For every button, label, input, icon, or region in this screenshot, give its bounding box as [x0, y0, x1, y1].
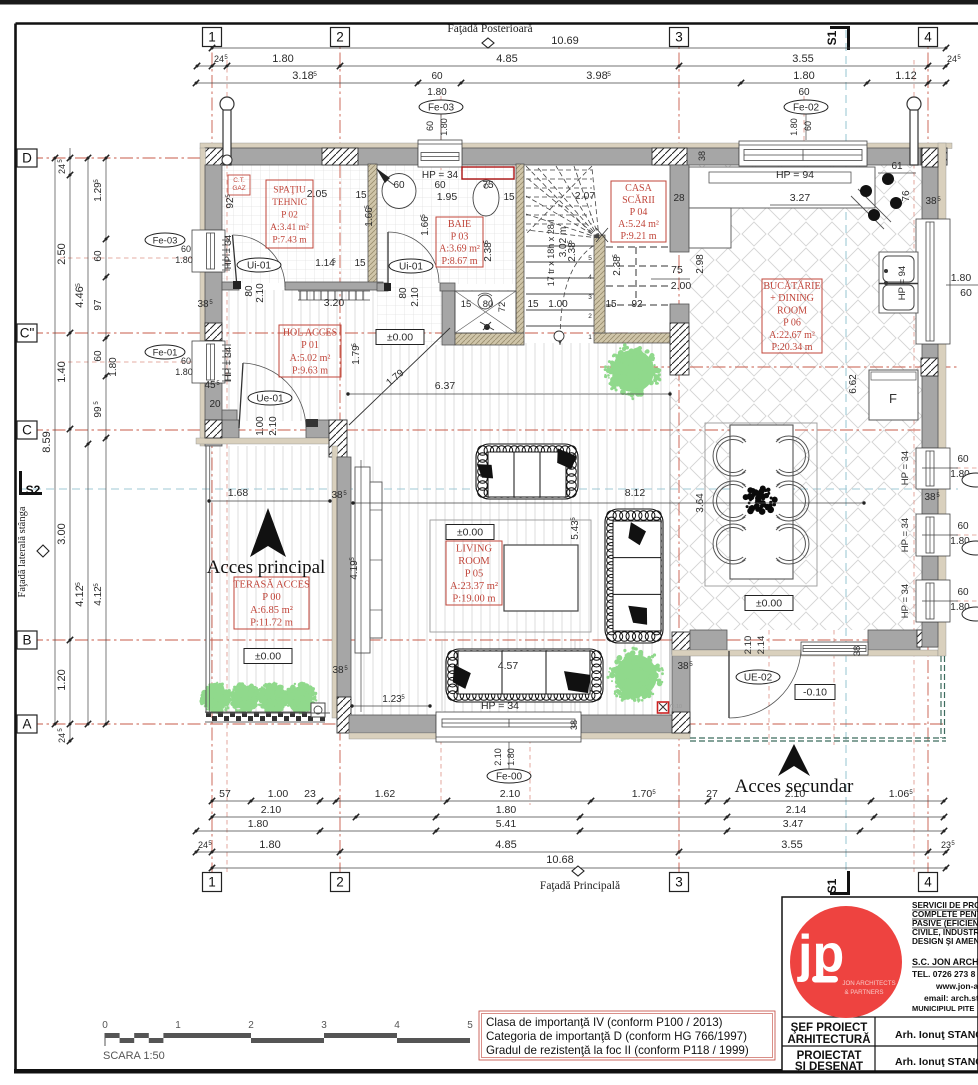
svg-text:4.12: 4.12 — [74, 585, 86, 606]
svg-text:38: 38 — [197, 299, 209, 310]
svg-text:A: A — [22, 717, 31, 732]
svg-text:2.00: 2.00 — [671, 280, 692, 292]
svg-text:C": C" — [20, 326, 35, 341]
svg-text:2.98: 2.98 — [695, 254, 706, 274]
svg-text:4: 4 — [588, 274, 592, 281]
svg-text:CIVILE, INDUSTRI: CIVILE, INDUSTRI — [912, 928, 978, 937]
svg-text:60: 60 — [434, 180, 446, 191]
svg-text:2.10: 2.10 — [410, 287, 421, 307]
svg-text:±0.00: ±0.00 — [457, 527, 483, 539]
svg-text:5: 5 — [588, 255, 592, 262]
svg-text:60: 60 — [181, 244, 191, 254]
svg-text:60: 60 — [93, 350, 104, 362]
svg-text:P 02: P 02 — [281, 211, 298, 221]
svg-text:jp: jp — [797, 925, 844, 983]
svg-text:P 04: P 04 — [630, 207, 648, 218]
svg-text:B: B — [22, 633, 31, 648]
svg-text:1.23: 1.23 — [382, 694, 402, 705]
svg-text:2.10: 2.10 — [255, 283, 266, 303]
svg-text:1.62: 1.62 — [375, 788, 396, 800]
svg-text:20: 20 — [209, 399, 221, 410]
svg-text:1.66: 1.66 — [420, 216, 431, 236]
svg-text:10.68: 10.68 — [546, 854, 574, 866]
svg-text:4.85: 4.85 — [496, 53, 517, 65]
svg-text:LIVING: LIVING — [456, 543, 493, 554]
svg-text:5.41: 5.41 — [496, 818, 517, 830]
svg-text:Ui-01: Ui-01 — [399, 262, 423, 273]
svg-text:76: 76 — [901, 190, 912, 202]
svg-text:HOL ACCES: HOL ACCES — [283, 328, 337, 339]
svg-text:P:8.67 m: P:8.67 m — [441, 256, 477, 267]
svg-text:1.06: 1.06 — [889, 788, 910, 800]
svg-text:3.27: 3.27 — [790, 192, 811, 204]
svg-text:1.80: 1.80 — [789, 118, 799, 136]
svg-text:2.38: 2.38 — [567, 242, 578, 262]
svg-text:60: 60 — [431, 71, 443, 82]
svg-text:2.14: 2.14 — [756, 636, 767, 655]
svg-text:24: 24 — [214, 54, 224, 64]
svg-text:24: 24 — [57, 733, 67, 743]
svg-text:38: 38 — [852, 646, 863, 657]
svg-text:3.18: 3.18 — [292, 70, 313, 82]
svg-text:92: 92 — [225, 197, 236, 209]
svg-text:2.10: 2.10 — [493, 748, 503, 766]
svg-text:28: 28 — [673, 193, 685, 204]
svg-text:P 01: P 01 — [301, 340, 319, 351]
svg-text:A:5.02 m²: A:5.02 m² — [290, 353, 331, 364]
svg-text:Fe-01: Fe-01 — [153, 348, 178, 359]
svg-text:A:3.41 m²: A:3.41 m² — [270, 223, 309, 233]
svg-text:5: 5 — [75, 582, 82, 586]
svg-text:23: 23 — [304, 788, 316, 800]
svg-text:99: 99 — [93, 406, 104, 418]
svg-text:4.85: 4.85 — [495, 839, 516, 851]
svg-text:1.29: 1.29 — [93, 182, 104, 202]
svg-text:1.68: 1.68 — [228, 487, 249, 499]
svg-text:2.14: 2.14 — [786, 804, 807, 816]
svg-text:24: 24 — [57, 164, 67, 174]
svg-text:60: 60 — [957, 587, 969, 598]
svg-text:Faţadă Posterioară: Faţadă Posterioară — [447, 23, 532, 35]
svg-text:2.07: 2.07 — [575, 190, 596, 202]
svg-text:+ DINING: + DINING — [770, 293, 814, 304]
svg-text:A:23.37 m²: A:23.37 m² — [450, 581, 498, 592]
svg-text:4: 4 — [924, 875, 932, 890]
svg-text:24: 24 — [198, 840, 208, 850]
svg-text:38: 38 — [925, 196, 937, 207]
svg-text:60: 60 — [803, 121, 813, 131]
svg-text:-0.10: -0.10 — [803, 687, 827, 699]
svg-text:15: 15 — [355, 190, 367, 201]
svg-text:3.20: 3.20 — [324, 297, 345, 309]
svg-text:COMPLETE PENTF: COMPLETE PENTF — [912, 910, 978, 919]
svg-text:1.20: 1.20 — [56, 669, 68, 690]
svg-text:JON ARCHITECTS: JON ARCHITECTS — [842, 980, 895, 987]
svg-text:15: 15 — [503, 192, 515, 203]
svg-text:5: 5 — [607, 71, 611, 78]
svg-text:email: arch.st: email: arch.st — [924, 993, 978, 1003]
svg-text:3.98: 3.98 — [586, 70, 607, 82]
svg-text:A:22.67 m²: A:22.67 m² — [769, 330, 815, 341]
svg-text:Arh. Ionuţ STANC: Arh. Ionuţ STANC — [895, 1029, 978, 1041]
svg-text:Ui-01: Ui-01 — [247, 261, 271, 272]
svg-text:TERASĂ ACCES: TERASĂ ACCES — [233, 578, 310, 590]
svg-text:1: 1 — [588, 334, 592, 341]
svg-text:TEHNIC: TEHNIC — [272, 198, 307, 208]
svg-text:ROOM: ROOM — [458, 556, 490, 567]
svg-text:MUNICIPIUL PITE: MUNICIPIUL PITE — [912, 1004, 974, 1013]
svg-text:Ue-01: Ue-01 — [256, 394, 284, 405]
svg-text:1.79: 1.79 — [351, 345, 362, 365]
svg-text:/0.10: /0.10 — [670, 704, 682, 710]
svg-text:2: 2 — [336, 875, 344, 890]
svg-text:75: 75 — [482, 180, 494, 191]
svg-text:60: 60 — [957, 521, 969, 532]
svg-text:2: 2 — [336, 30, 344, 45]
svg-text:1.12: 1.12 — [895, 70, 916, 82]
svg-text:HP = 34: HP = 34 — [223, 235, 234, 269]
svg-text:Faţadă laterală stânga: Faţadă laterală stânga — [17, 506, 28, 597]
svg-text:45: 45 — [204, 380, 216, 391]
svg-text:1: 1 — [208, 30, 216, 45]
svg-text:UE-02: UE-02 — [744, 673, 773, 684]
svg-text:S1: S1 — [825, 878, 839, 893]
svg-text:2.50: 2.50 — [56, 243, 68, 264]
svg-text:15: 15 — [605, 299, 617, 310]
svg-text:72: 72 — [497, 302, 508, 313]
svg-text:57: 57 — [219, 788, 231, 800]
svg-text:0: 0 — [102, 1020, 108, 1031]
svg-text:Categoria de importanţă D (con: Categoria de importanţă D (conform HG 76… — [486, 1030, 747, 1043]
svg-text:HP = 34: HP = 34 — [900, 451, 911, 485]
svg-text:Fe-00: Fe-00 — [496, 772, 523, 783]
svg-text:1.80: 1.80 — [272, 53, 293, 65]
svg-text:GAZ: GAZ — [232, 185, 245, 192]
svg-text:TEL. 0726 273 8: TEL. 0726 273 8 — [912, 969, 976, 979]
svg-text:2.10: 2.10 — [268, 416, 279, 436]
svg-text:38: 38 — [924, 492, 936, 503]
svg-text:1.40: 1.40 — [56, 361, 68, 382]
svg-text:HP = 94: HP = 94 — [776, 169, 814, 181]
svg-text:60: 60 — [798, 87, 810, 98]
svg-text:S1: S1 — [825, 30, 839, 45]
svg-text:3: 3 — [675, 875, 683, 890]
svg-text:1.80: 1.80 — [175, 255, 193, 265]
svg-text:2.05: 2.05 — [307, 188, 328, 200]
svg-text:5.43: 5.43 — [570, 520, 581, 540]
svg-text:10.69: 10.69 — [551, 35, 579, 47]
svg-text:Clasa de importanţă IV (confor: Clasa de importanţă IV (conform P100 / 2… — [486, 1016, 723, 1029]
svg-text:1.80: 1.80 — [175, 367, 193, 377]
svg-text:S.C. JON ARCH: S.C. JON ARCH — [912, 957, 978, 967]
svg-text:HP = 34: HP = 34 — [481, 700, 519, 712]
svg-text:A:6.85 m²: A:6.85 m² — [250, 605, 293, 616]
svg-text:SPAŢIU: SPAŢIU — [273, 185, 306, 195]
svg-text:Fe-03: Fe-03 — [153, 236, 178, 247]
svg-text:1.80: 1.80 — [248, 818, 269, 830]
svg-text:±0.00: ±0.00 — [255, 651, 281, 663]
svg-text:P:19.00 m: P:19.00 m — [452, 594, 495, 605]
svg-text:27: 27 — [706, 788, 718, 800]
svg-text:P:20.34 m: P:20.34 m — [771, 342, 812, 353]
svg-text:38: 38 — [677, 661, 689, 672]
svg-text:HP = 34: HP = 34 — [223, 347, 234, 381]
svg-text:75: 75 — [671, 264, 683, 276]
svg-text:15: 15 — [354, 258, 366, 269]
svg-text:ARHITECTURĂ: ARHITECTURĂ — [787, 1033, 870, 1046]
svg-text:3.55: 3.55 — [792, 53, 813, 65]
svg-text:4.12: 4.12 — [93, 586, 104, 606]
svg-text:3.47: 3.47 — [783, 818, 804, 830]
svg-text:1.80: 1.80 — [951, 272, 972, 284]
svg-text:D: D — [22, 151, 32, 166]
svg-text:97: 97 — [93, 299, 104, 311]
svg-text:3.00: 3.00 — [56, 523, 68, 544]
svg-text:HP = 34: HP = 34 — [900, 518, 911, 552]
svg-text:3.55: 3.55 — [781, 839, 802, 851]
svg-text:92: 92 — [631, 299, 643, 310]
svg-text:ROOM: ROOM — [777, 305, 807, 316]
svg-text:80: 80 — [483, 299, 494, 310]
svg-text:P 00: P 00 — [262, 592, 281, 603]
svg-text:1.00: 1.00 — [548, 299, 568, 310]
svg-text:& PARTNERS: & PARTNERS — [845, 989, 884, 996]
svg-text:38: 38 — [332, 665, 344, 676]
svg-text:3: 3 — [675, 30, 683, 45]
svg-text:HP = 94: HP = 94 — [897, 266, 908, 300]
svg-text:1.80: 1.80 — [259, 839, 280, 851]
svg-text:80: 80 — [398, 287, 409, 299]
svg-text:6.37: 6.37 — [435, 380, 456, 392]
svg-text:P 06: P 06 — [783, 318, 801, 329]
svg-text:A:3.69 m²: A:3.69 m² — [439, 244, 480, 255]
svg-text:Faţadă Principală: Faţadă Principală — [540, 880, 620, 892]
svg-text:60: 60 — [960, 287, 972, 299]
svg-text:4.46: 4.46 — [74, 286, 86, 307]
svg-text:1.80: 1.80 — [793, 70, 814, 82]
svg-text:1.95: 1.95 — [437, 191, 458, 203]
svg-text:ŞI DESENAT: ŞI DESENAT — [795, 1061, 863, 1073]
svg-text:3: 3 — [588, 294, 592, 301]
svg-text:5: 5 — [467, 1020, 473, 1031]
svg-text:1.80: 1.80 — [427, 87, 447, 98]
svg-text:F: F — [889, 391, 897, 406]
svg-text:SCARA 1:50: SCARA 1:50 — [103, 1050, 165, 1062]
svg-text:2.10: 2.10 — [743, 636, 754, 655]
svg-text:38: 38 — [569, 720, 579, 730]
svg-text:±0.00: ±0.00 — [387, 332, 413, 344]
svg-text:BAIE: BAIE — [448, 219, 471, 230]
svg-text:SERVICII DE PROI: SERVICII DE PROI — [912, 901, 978, 910]
svg-text:60: 60 — [93, 250, 104, 262]
svg-text:2.10: 2.10 — [500, 788, 521, 800]
svg-text:www.jon-a: www.jon-a — [935, 981, 978, 991]
svg-text:Fe-02: Fe-02 — [793, 103, 820, 114]
svg-text:P:9.63 m: P:9.63 m — [292, 365, 328, 376]
svg-text:1.80: 1.80 — [506, 748, 516, 766]
svg-text:38: 38 — [697, 151, 707, 161]
svg-text:P 03: P 03 — [451, 231, 469, 242]
svg-text:4: 4 — [924, 30, 932, 45]
svg-text:C.T.: C.T. — [233, 177, 245, 184]
svg-text:4.57: 4.57 — [498, 660, 519, 672]
svg-text:80: 80 — [244, 285, 255, 297]
svg-text:CASA: CASA — [625, 183, 652, 194]
svg-text:ŞEF PROIECT: ŞEF PROIECT — [791, 1022, 868, 1034]
svg-text:2.10: 2.10 — [261, 804, 282, 816]
svg-text:4: 4 — [394, 1020, 400, 1031]
svg-text:SCĂRII: SCĂRII — [622, 194, 655, 206]
svg-text:Fe-03: Fe-03 — [428, 103, 455, 114]
svg-text:60: 60 — [181, 356, 191, 366]
svg-text:60: 60 — [425, 121, 435, 131]
svg-text:Arh. Ionuţ STANC: Arh. Ionuţ STANC — [895, 1056, 978, 1068]
svg-text:C: C — [22, 423, 32, 438]
svg-text:60: 60 — [393, 180, 405, 191]
svg-text:23: 23 — [941, 840, 951, 850]
svg-text:PASIVE (EFICIENT: PASIVE (EFICIENT — [912, 919, 978, 928]
svg-text:P:11.72 m: P:11.72 m — [250, 618, 293, 629]
svg-text:4.19: 4.19 — [349, 560, 360, 580]
svg-text:2.38: 2.38 — [612, 256, 623, 276]
svg-text:1.66: 1.66 — [364, 207, 375, 227]
svg-text:P 05: P 05 — [465, 569, 484, 580]
svg-text:2: 2 — [588, 313, 592, 320]
svg-text:15: 15 — [527, 299, 539, 310]
svg-text:5: 5 — [313, 71, 317, 78]
svg-text:P:7.43 m: P:7.43 m — [272, 236, 307, 246]
svg-text:8.12: 8.12 — [625, 487, 646, 499]
svg-text:60: 60 — [957, 454, 969, 465]
svg-text:1.80: 1.80 — [439, 118, 449, 136]
svg-text:1: 1 — [208, 875, 216, 890]
svg-text:6.62: 6.62 — [848, 374, 859, 394]
svg-text:2: 2 — [248, 1020, 254, 1031]
svg-text:38: 38 — [331, 490, 343, 501]
svg-text:61: 61 — [891, 161, 903, 172]
svg-text:BUCĂTĂRIE: BUCĂTĂRIE — [763, 280, 820, 292]
svg-text:P:9.21 m: P:9.21 m — [620, 231, 656, 242]
svg-text:1.80: 1.80 — [496, 804, 517, 816]
svg-text:Gradul de rezistenţă la foc II: Gradul de rezistenţă la foc II (conform … — [486, 1044, 749, 1057]
svg-text:HP = 34: HP = 34 — [900, 584, 911, 618]
svg-text:Acces secundar: Acces secundar — [735, 776, 854, 797]
svg-text:1: 1 — [175, 1020, 181, 1031]
svg-text:5: 5 — [75, 283, 82, 287]
svg-text:15: 15 — [461, 299, 472, 310]
svg-text:1.00: 1.00 — [268, 788, 289, 800]
svg-text:1.80: 1.80 — [108, 357, 119, 377]
svg-text:±0.00: ±0.00 — [756, 598, 782, 610]
svg-text:24: 24 — [947, 54, 957, 64]
svg-text:Acces principal: Acces principal — [207, 557, 326, 578]
svg-text:2.38: 2.38 — [483, 242, 494, 262]
svg-text:3: 3 — [321, 1020, 327, 1031]
svg-text:1.70: 1.70 — [632, 788, 653, 800]
svg-text:8.59: 8.59 — [41, 431, 53, 452]
svg-text:A:5.24 m²: A:5.24 m² — [618, 219, 659, 230]
svg-text:DESIGN ŞI AMENA: DESIGN ŞI AMENA — [912, 937, 978, 946]
svg-text:1.00: 1.00 — [255, 416, 266, 436]
svg-text:17 tr x 18h x 28 l: 17 tr x 18h x 28 l — [546, 220, 556, 287]
